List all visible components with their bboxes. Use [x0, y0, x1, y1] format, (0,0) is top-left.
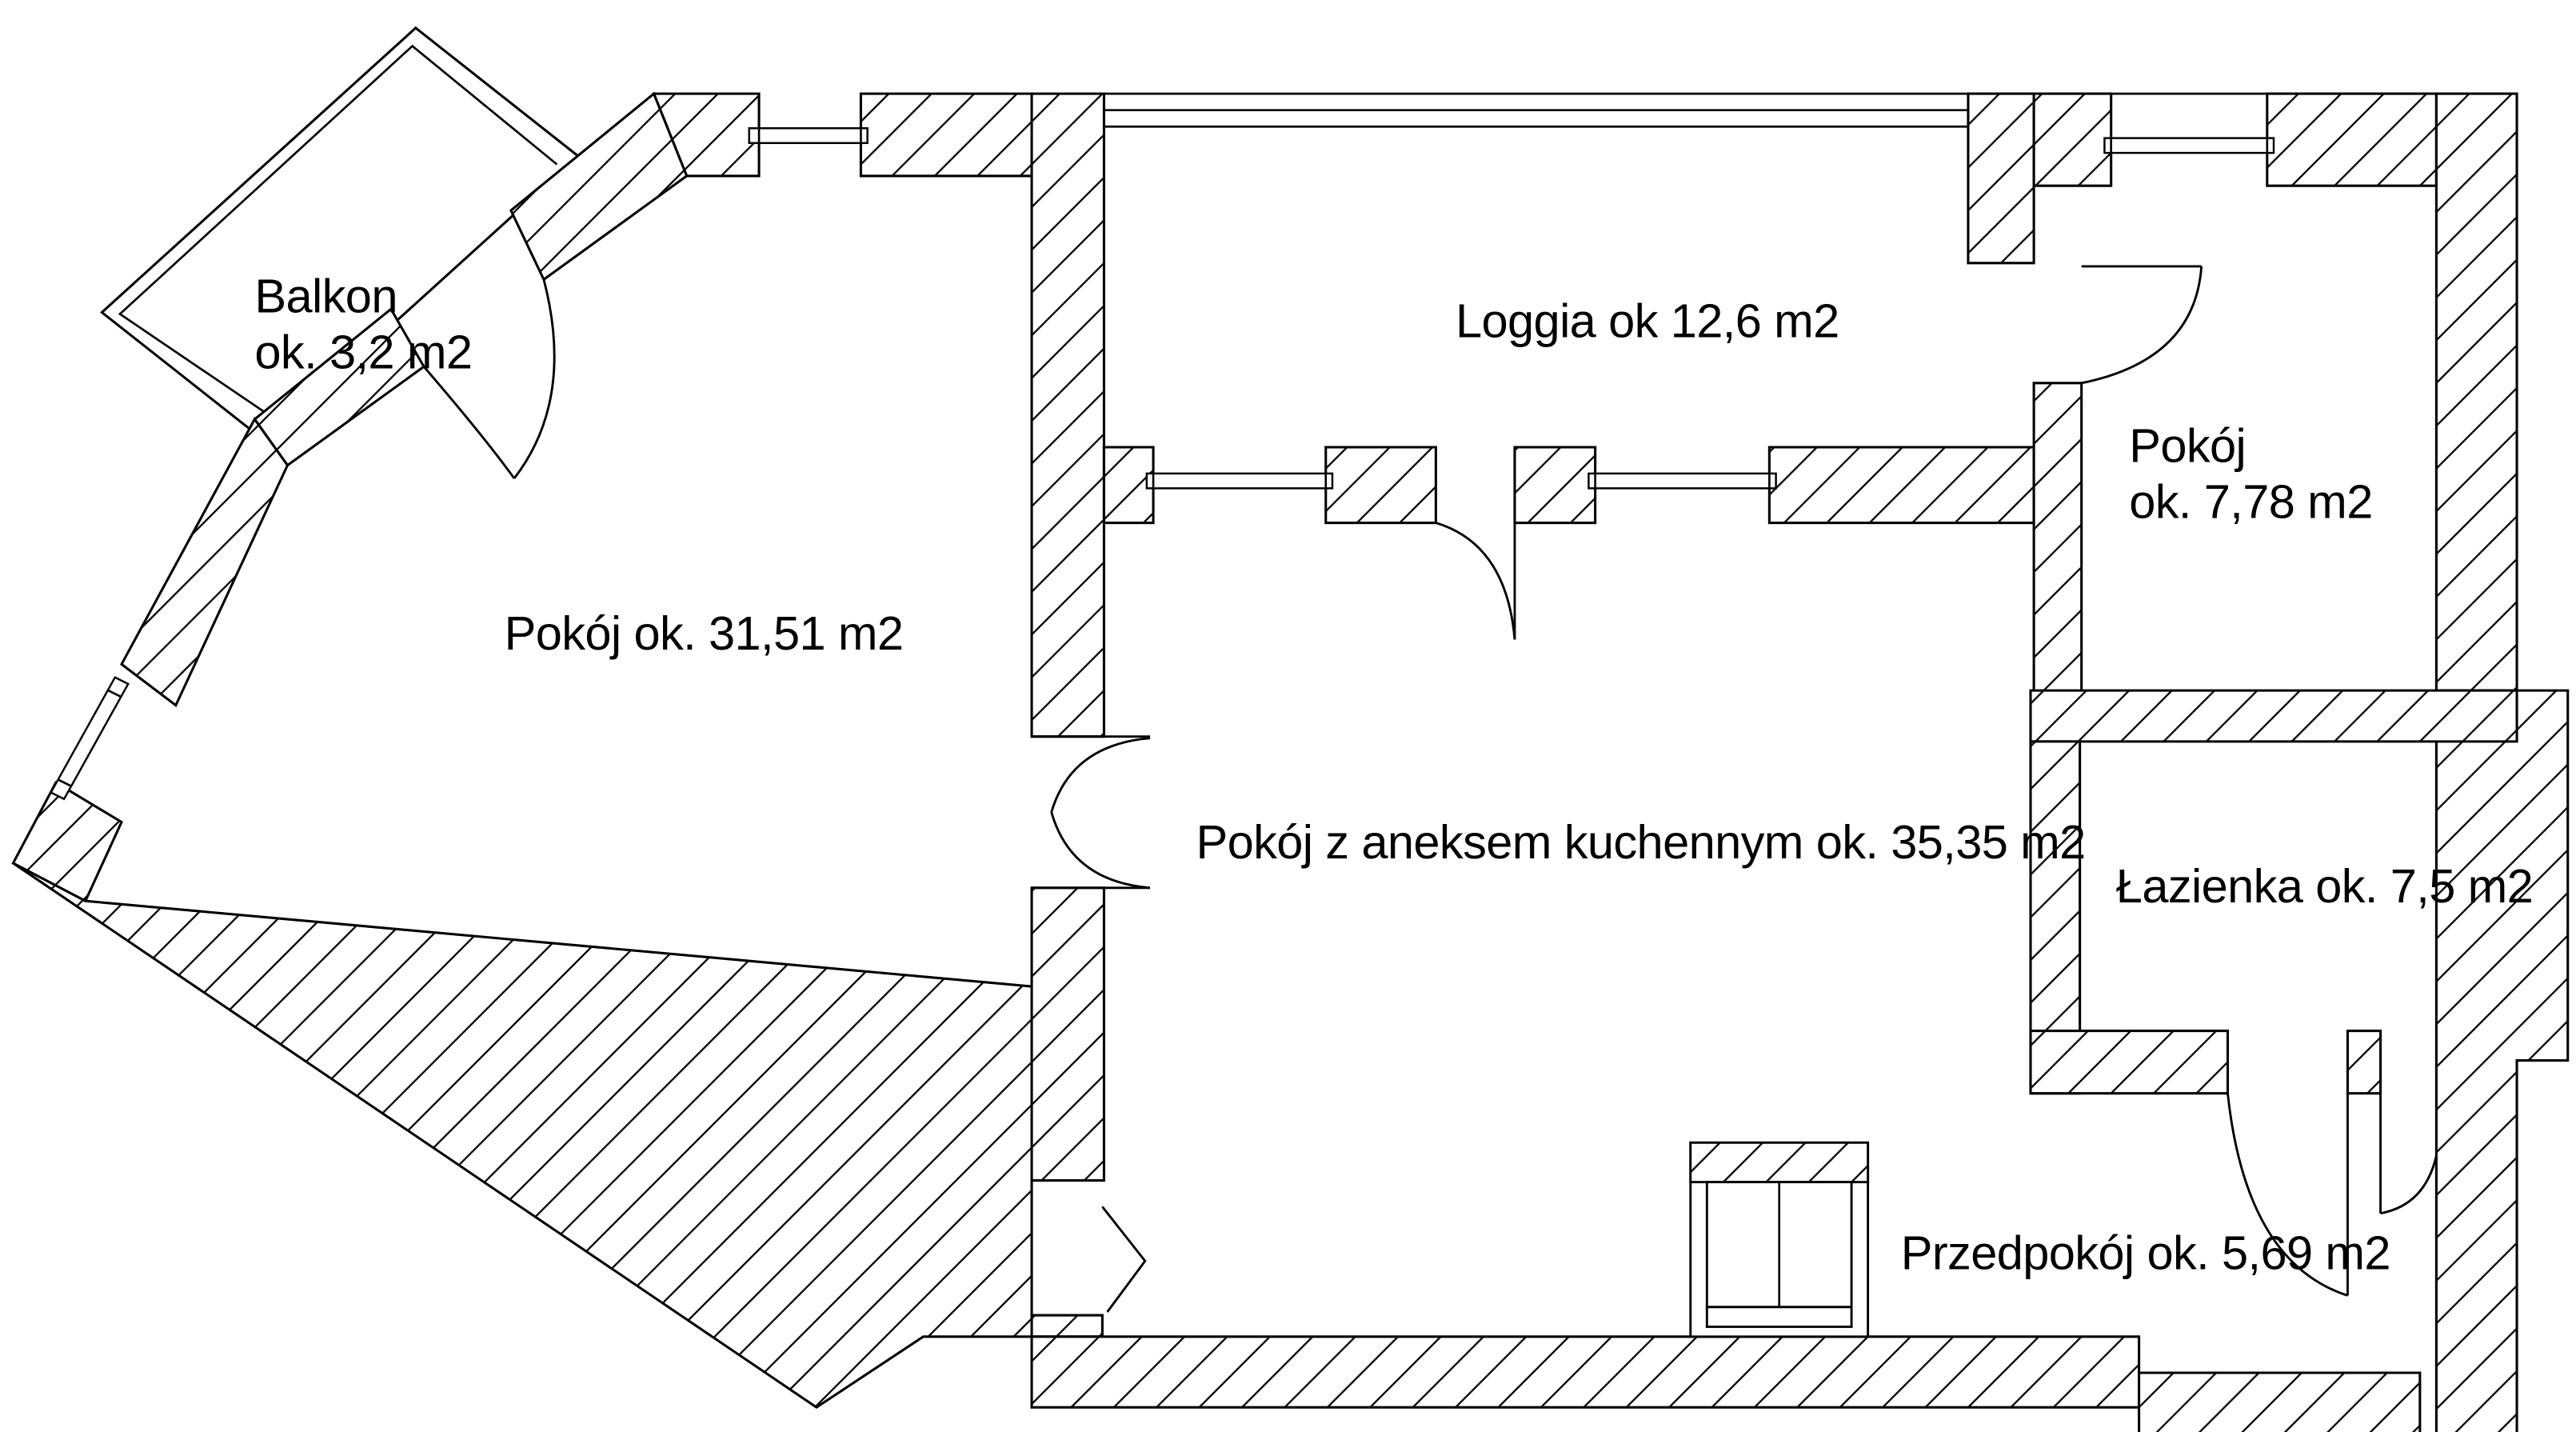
label-loggia: Loggia ok 12,6 m2	[1456, 294, 1839, 347]
wall-smallroom-top-left	[2034, 94, 2111, 186]
wall-smallroom-left	[2034, 383, 2082, 718]
window-bigroom-top	[749, 128, 868, 142]
floor-plan-page: Balkon ok. 3,2 m2 Loggia ok 12,6 m2 Pokó…	[0, 0, 2576, 1432]
label-pokoj-maly-line1: Pokój	[2129, 418, 2246, 472]
label-pokoj-duzy: Pokój ok. 31,51 m2	[505, 606, 904, 660]
label-pokoj-aneks: Pokój z aneksem kuchennym ok. 35,35 m2	[1196, 815, 2085, 869]
wall-smallroom-top-right	[2267, 94, 2437, 186]
wall-loggia-bottom-3	[1515, 447, 1596, 523]
wall-bathroom-top	[2031, 690, 2517, 742]
wall-bottom-left-band	[1032, 1337, 2139, 1407]
wall-bigroom-right-pillar	[1032, 888, 1104, 1181]
wall-bathroom-bottom-right	[2347, 1031, 2380, 1094]
wall-right-outer-upper	[2436, 94, 2517, 690]
wall-entrance-jamb	[1032, 1315, 1102, 1337]
wall-loggia-right-pillar	[1968, 94, 2034, 263]
wall-loggia-bottom-2	[1326, 447, 1436, 523]
label-przedpokoj: Przedpokój ok. 5,69 m2	[1901, 1226, 2390, 1280]
window-loggia-left	[1147, 474, 1332, 488]
wall-bigroom-right-upper	[1032, 94, 1104, 737]
label-pokoj-maly-line2: ok. 7,78 m2	[2129, 474, 2372, 528]
floor-plan: Balkon ok. 3,2 m2 Loggia ok 12,6 m2 Pokó…	[0, 0, 2576, 1432]
wall-loggia-bottom-4	[1769, 447, 2034, 523]
window-smallroom-top	[2104, 138, 2274, 153]
wardrobe	[1691, 1142, 1868, 1337]
wall-bigroom-top-right	[861, 94, 1032, 176]
wall-bathroom-bottom-left	[2031, 1031, 2228, 1094]
wall-bottom-right-band	[2139, 1373, 2420, 1432]
window-loggia-right	[1588, 474, 1775, 488]
label-balkon-line2: ok. 3,2 m2	[254, 325, 472, 378]
label-lazienka: Łazienka ok. 7,5 m2	[2116, 859, 2533, 913]
label-balkon-line1: Balkon	[254, 269, 397, 322]
